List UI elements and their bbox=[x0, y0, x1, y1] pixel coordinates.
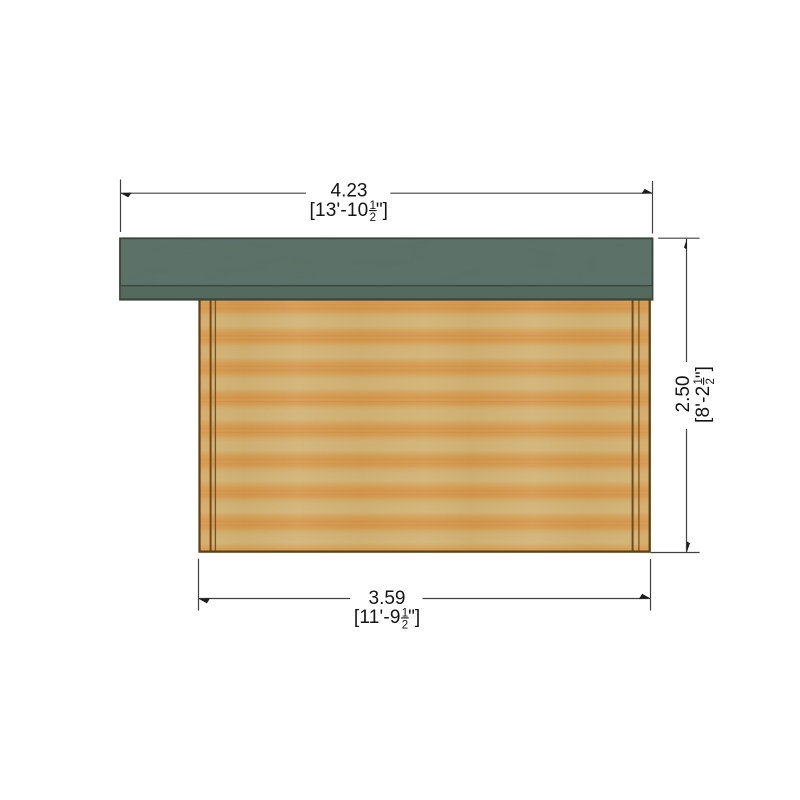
svg-text:3.59: 3.59 bbox=[369, 588, 406, 609]
svg-text:[11'-9: [11'-9 bbox=[354, 607, 401, 628]
svg-text:[8'-2: [8'-2 bbox=[693, 386, 714, 423]
svg-text:"]: "] bbox=[376, 200, 388, 221]
svg-text:4.23: 4.23 bbox=[331, 181, 368, 202]
svg-text:"]: "] bbox=[408, 607, 420, 628]
svg-text:2.50: 2.50 bbox=[673, 376, 694, 413]
svg-text:[13'-10: [13'-10 bbox=[310, 200, 369, 221]
svg-text:"]: "] bbox=[693, 366, 714, 378]
